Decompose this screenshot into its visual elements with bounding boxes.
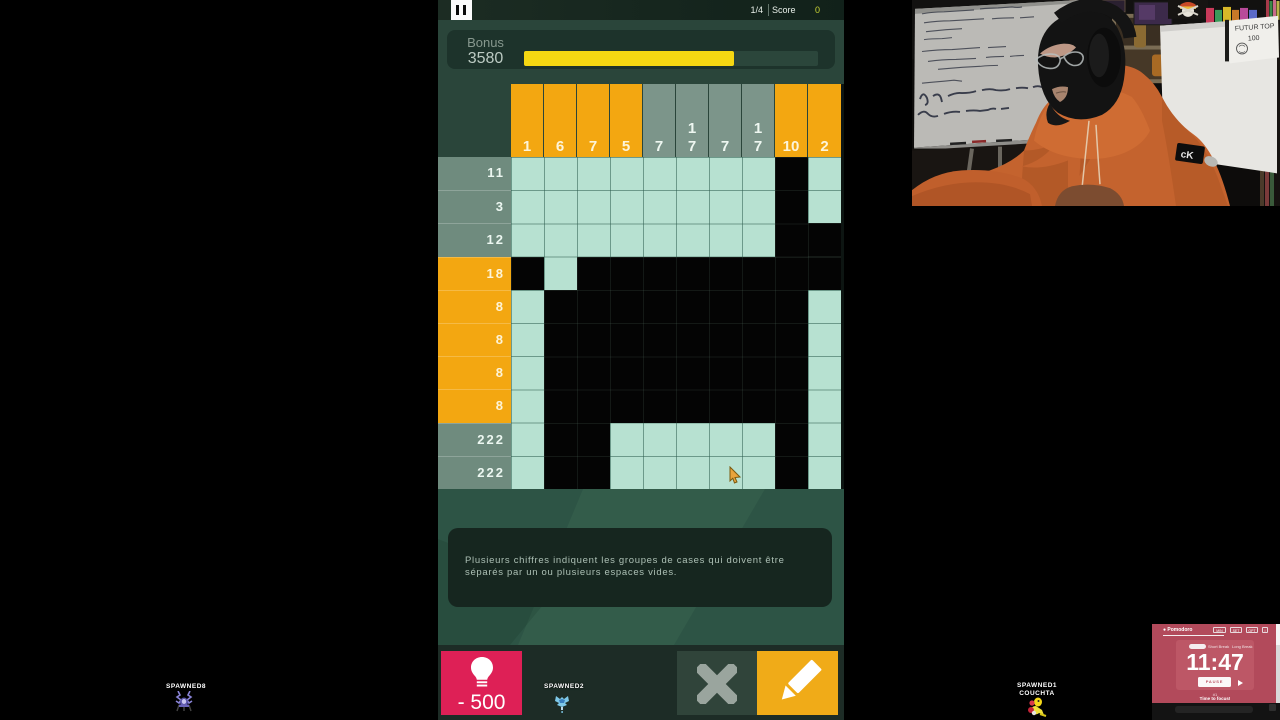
svg-text:cK: cK <box>1180 149 1195 162</box>
svg-text:100: 100 <box>1248 35 1260 43</box>
